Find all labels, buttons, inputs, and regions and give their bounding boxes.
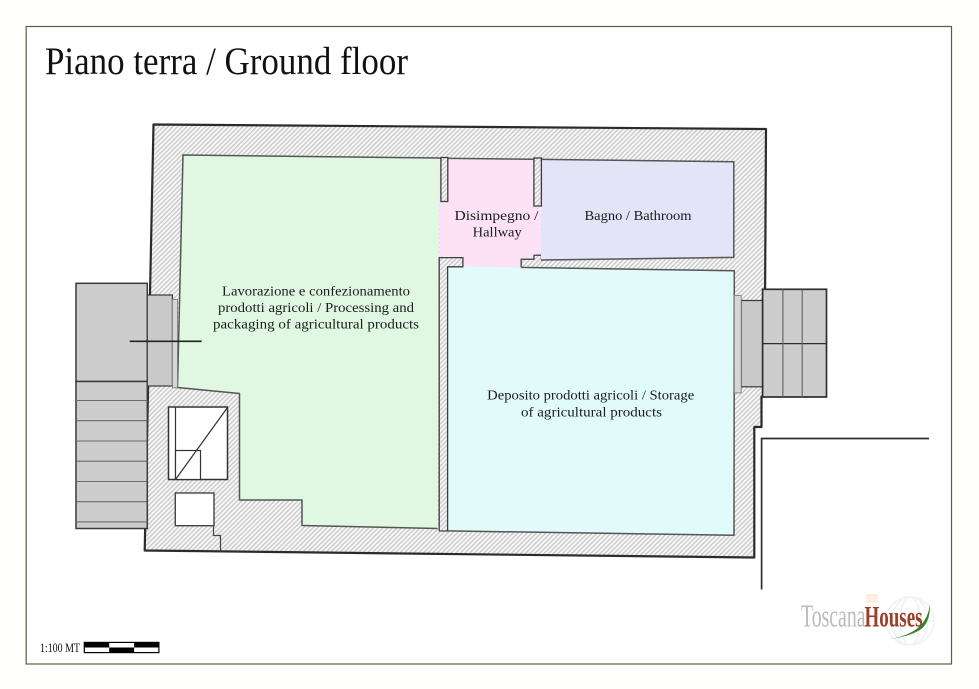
- svg-text:Lavorazione e confezionamento: Lavorazione e confezionamento: [222, 284, 410, 299]
- svg-text:Disimpegno /: Disimpegno /: [455, 209, 539, 224]
- svg-text:1:100 MT: 1:100 MT: [40, 641, 80, 655]
- svg-text:Deposito prodotti agricoli / S: Deposito prodotti agricoli / Storage: [487, 388, 694, 403]
- svg-text:Toscana: Toscana: [801, 598, 866, 634]
- svg-text:Piano terra / Ground floor: Piano terra / Ground floor: [45, 40, 408, 83]
- svg-text:Houses: Houses: [865, 601, 923, 634]
- svg-text:packaging of agricultural prod: packaging of agricultural products: [213, 318, 419, 333]
- svg-text:of agricultural products: of agricultural products: [521, 406, 662, 421]
- svg-text:Hallway: Hallway: [473, 226, 522, 241]
- svg-text:Bagno / Bathroom: Bagno / Bathroom: [585, 209, 692, 224]
- svg-text:prodotti agricoli / Processing: prodotti agricoli / Processing and: [218, 301, 414, 316]
